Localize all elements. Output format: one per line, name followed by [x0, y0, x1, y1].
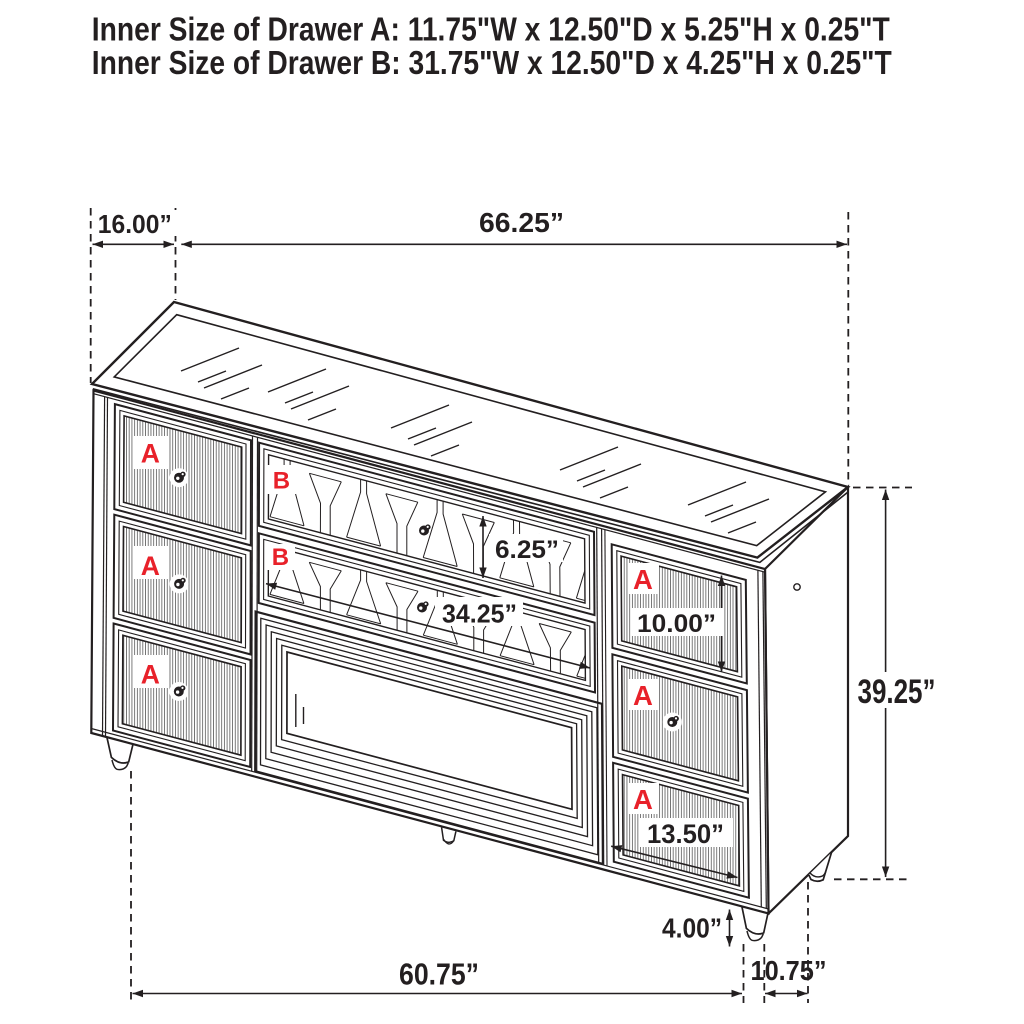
- svg-text:10.00”: 10.00”: [637, 610, 716, 638]
- svg-text:34.25”: 34.25”: [442, 598, 517, 628]
- svg-text:39.25”: 39.25”: [858, 673, 936, 711]
- svg-text:A: A: [141, 439, 160, 469]
- svg-text:A: A: [141, 551, 160, 581]
- svg-text:A: A: [633, 564, 653, 595]
- svg-text:Inner Size of Drawer A: 11.75": Inner Size of Drawer A: 11.75"W x 12.50"…: [92, 11, 890, 48]
- svg-text:B: B: [273, 467, 290, 494]
- svg-text:10.75”: 10.75”: [751, 955, 827, 986]
- svg-text:B: B: [272, 544, 289, 571]
- svg-text:13.50”: 13.50”: [647, 819, 724, 849]
- svg-text:6.25”: 6.25”: [495, 536, 559, 564]
- svg-text:16.00”: 16.00”: [98, 209, 172, 239]
- svg-text:66.25”: 66.25”: [479, 207, 564, 238]
- svg-text:A: A: [141, 660, 160, 690]
- svg-text:60.75”: 60.75”: [399, 957, 479, 992]
- svg-text:A: A: [633, 680, 653, 711]
- svg-text:4.00”: 4.00”: [662, 913, 722, 944]
- svg-text:A: A: [633, 784, 653, 815]
- svg-text:Inner Size of Drawer B: 31.75": Inner Size of Drawer B: 31.75"W x 12.50"…: [92, 44, 892, 81]
